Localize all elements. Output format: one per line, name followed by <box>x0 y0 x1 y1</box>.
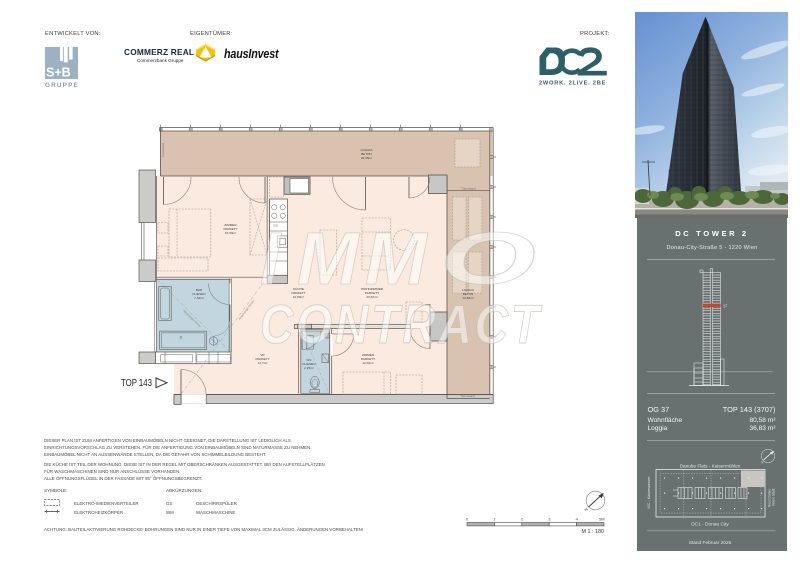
svg-text:2: 2 <box>521 517 524 522</box>
svg-text:5M: 5M <box>599 517 605 522</box>
svg-text:1: 1 <box>493 517 496 522</box>
svg-text:Innere Stadt: Innere Stadt <box>772 489 776 506</box>
svg-text:12,02m²: 12,02m² <box>362 361 373 365</box>
svg-text:15,33m²: 15,33m² <box>225 231 236 235</box>
svg-text:M: M <box>297 217 360 300</box>
svg-text:7,32m²: 7,32m² <box>194 296 204 300</box>
svg-text:VIC - Kaiserwasser: VIC - Kaiserwasser <box>647 476 651 509</box>
svg-text:N: N <box>583 507 589 513</box>
svg-text:0: 0 <box>466 517 469 522</box>
svg-text:S+B: S+B <box>46 66 71 80</box>
svg-text:22,95m²: 22,95m² <box>361 156 372 160</box>
svg-text:2,25m²: 2,25m² <box>304 366 314 370</box>
svg-text:13,7m²: 13,7m² <box>258 361 268 365</box>
svg-text:GRUPPE: GRUPPE <box>45 82 79 89</box>
svg-text:3: 3 <box>548 517 551 522</box>
svg-text:Trennwand: Trennwand <box>460 394 475 398</box>
svg-text:37: 37 <box>722 303 729 309</box>
svg-text:O: O <box>440 217 536 300</box>
svg-text:I: I <box>260 217 282 300</box>
svg-text:Danube Flats - Kaisermühlen: Danube Flats - Kaisermühlen <box>680 464 741 469</box>
svg-text:M: M <box>365 217 428 300</box>
svg-text:Stand Februar 2026: Stand Februar 2026 <box>689 540 732 546</box>
svg-text:CONTRACT: CONTRACT <box>260 293 543 354</box>
svg-text:Trennwand: Trennwand <box>461 186 476 190</box>
svg-text:2WORK. 2LIVE. 2BE: 2WORK. 2LIVE. 2BE <box>539 80 606 86</box>
svg-text:4: 4 <box>576 517 579 522</box>
svg-text:DC1 - Donau City: DC1 - Donau City <box>691 522 729 528</box>
svg-text:Trennwand: Trennwand <box>161 142 165 157</box>
svg-text:M 1 : 180: M 1 : 180 <box>582 529 604 535</box>
